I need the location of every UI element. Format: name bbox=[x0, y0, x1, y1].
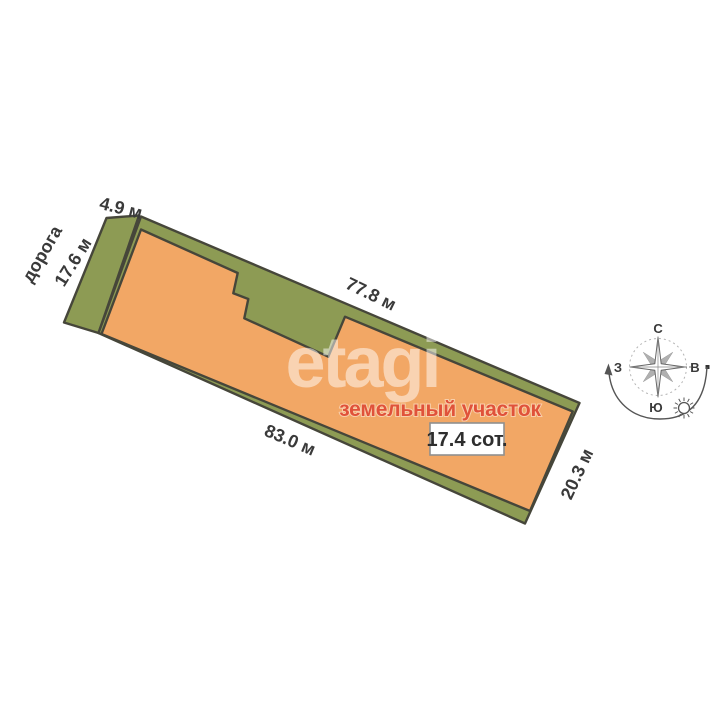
compass-west-label: З bbox=[614, 360, 622, 375]
compass-rose: С Ю З В bbox=[605, 321, 710, 419]
area-badge-value: 17.4 сот. bbox=[427, 429, 508, 451]
sun-icon bbox=[674, 398, 695, 419]
plot-title: земельный участок bbox=[339, 398, 541, 421]
plot-plan-canvas: etagi дорога 17.6 м 4.9 м 77.8 м 83.0 м … bbox=[0, 0, 725, 725]
watermark: etagi bbox=[285, 323, 438, 403]
land-plot-diagram: etagi дорога 17.6 м 4.9 м 77.8 м 83.0 м … bbox=[0, 0, 725, 725]
compass-north-label: С bbox=[653, 321, 663, 336]
compass-east-label: В bbox=[690, 360, 699, 375]
compass-south-label: Ю bbox=[649, 400, 662, 415]
dimension-right-label: 20.3 м bbox=[557, 446, 598, 503]
sun-path-arrowhead bbox=[605, 364, 613, 376]
